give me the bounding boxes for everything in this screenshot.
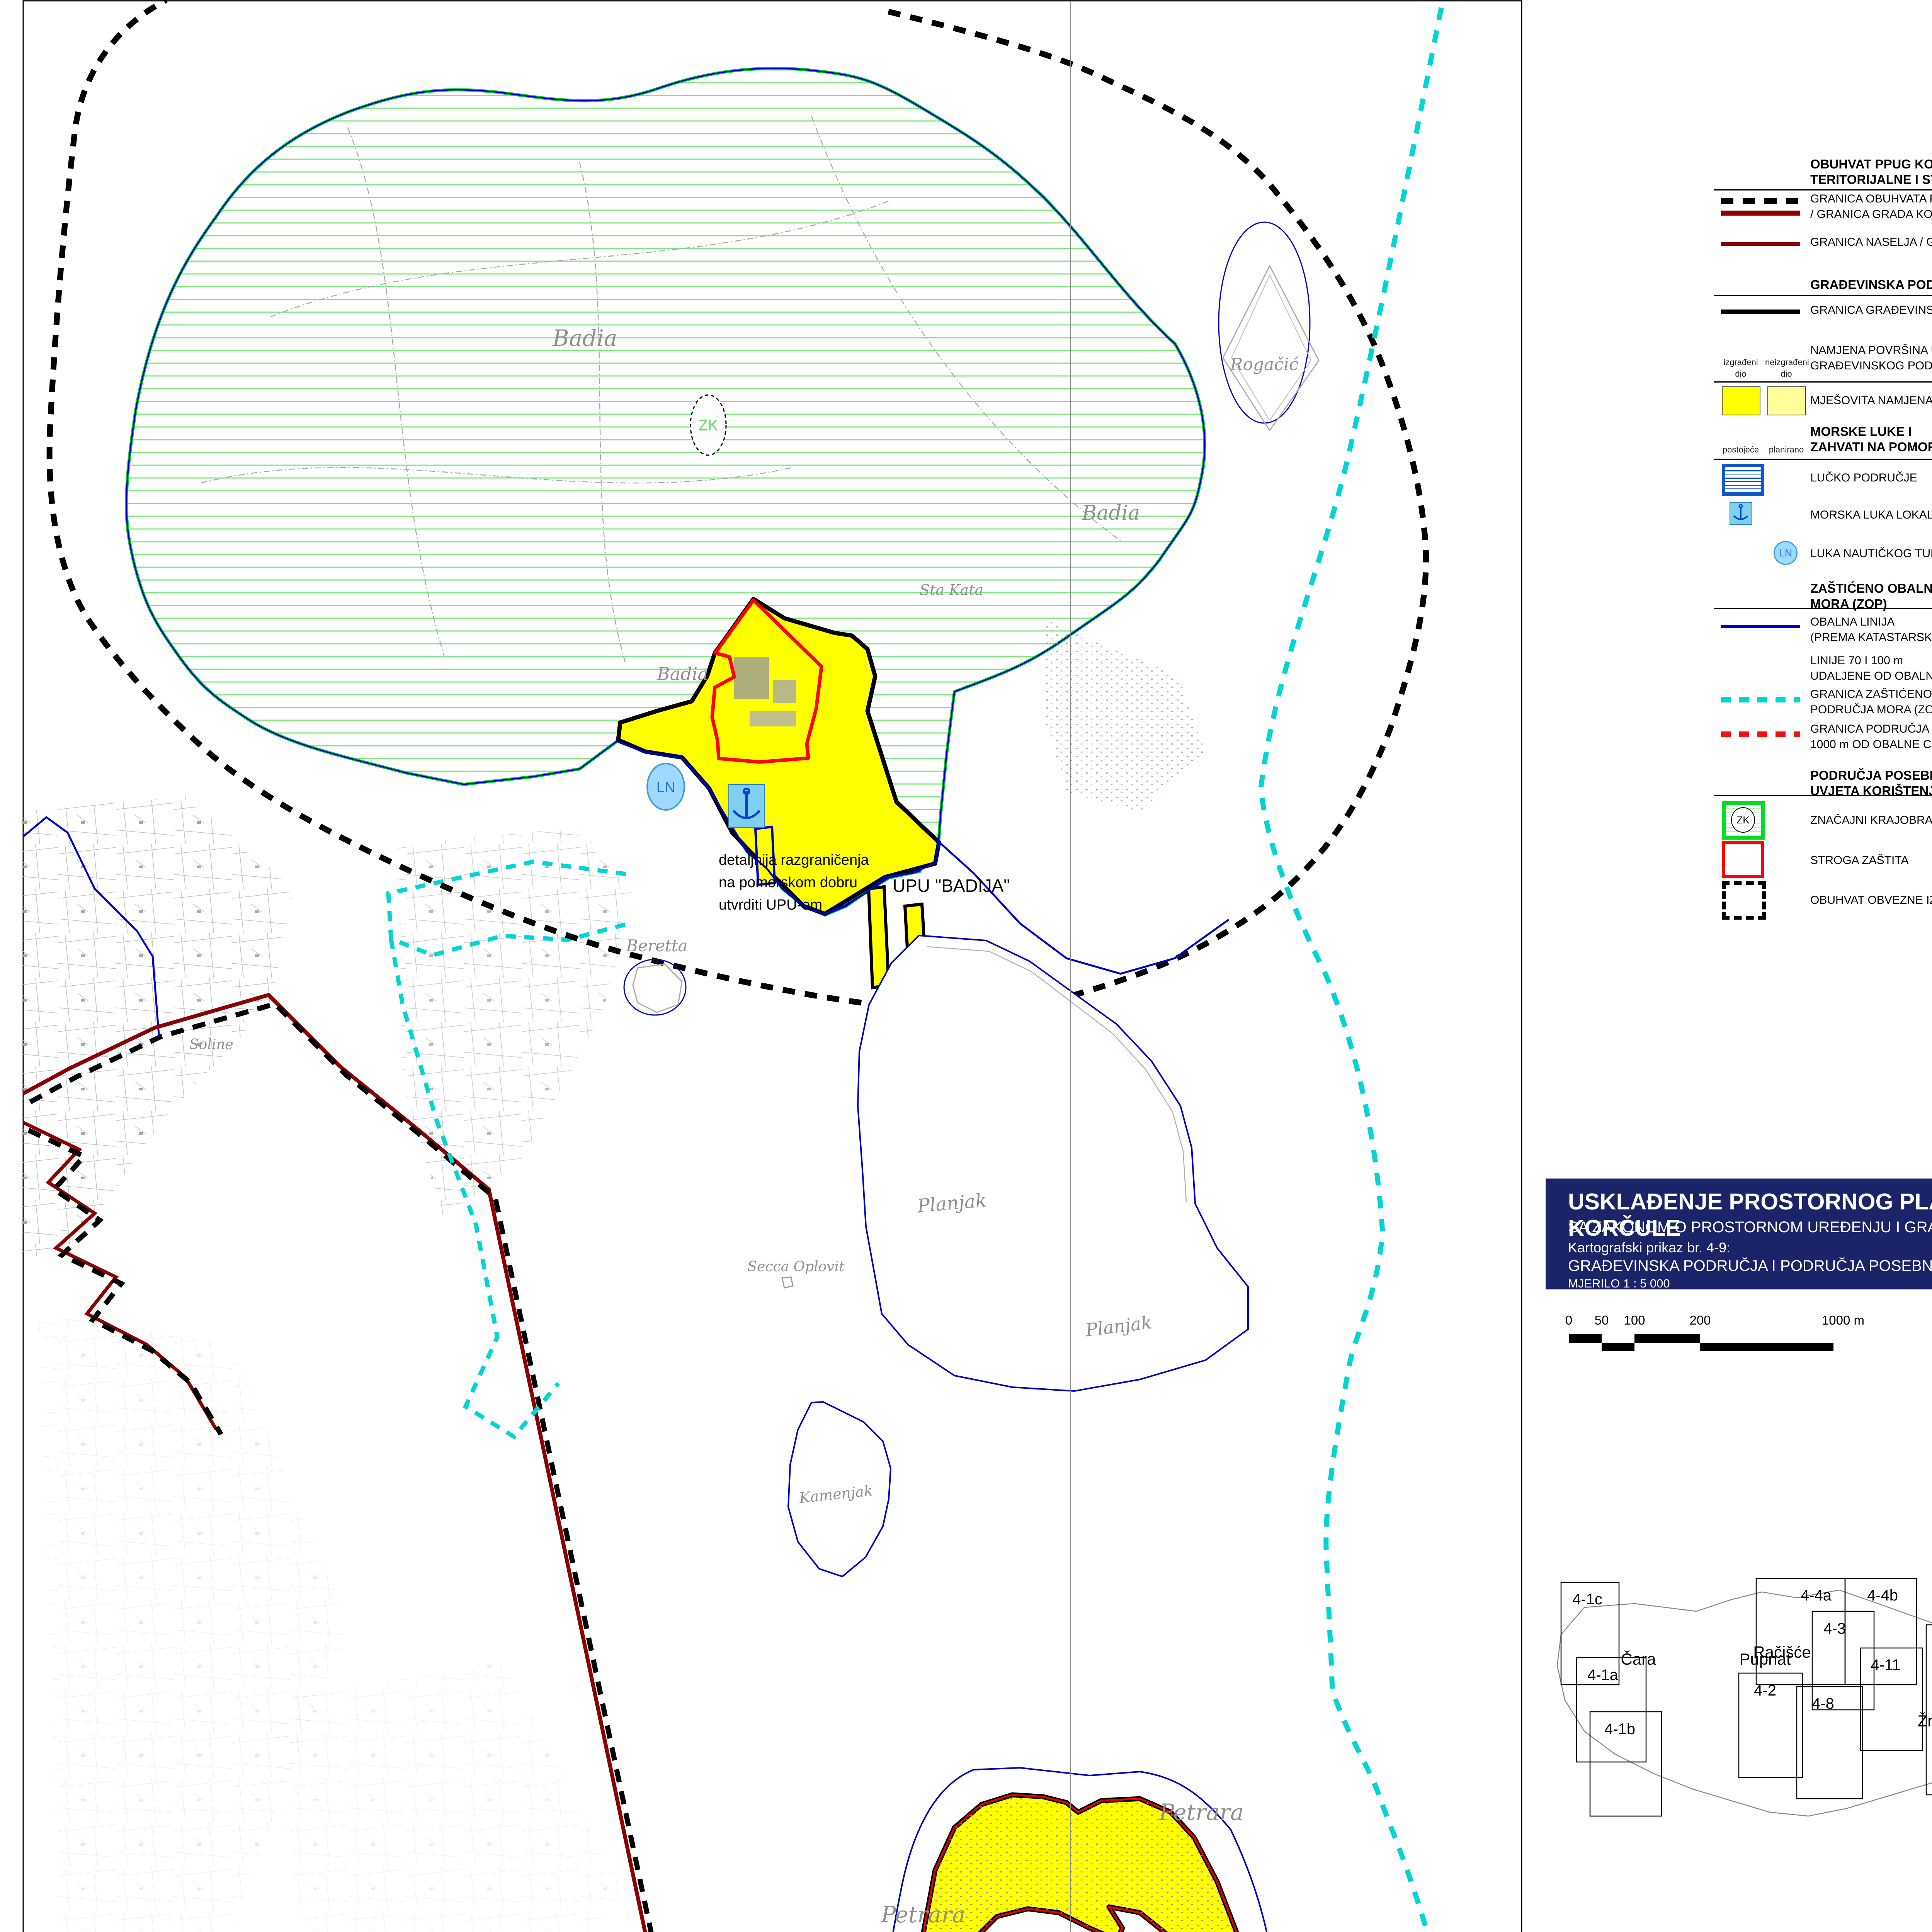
label-badia-1: Badia [552, 325, 617, 351]
svg-text:4-11: 4-11 [1871, 1656, 1900, 1673]
zk-icon: ZK [1731, 807, 1755, 833]
mjesovita-izgradeni-swatch [1722, 386, 1760, 415]
legend-col-postojece: postojeće [1719, 445, 1762, 455]
legend-item-label: GRANICA OBUHVATA PPUG KORČULE / / GRANIC… [1810, 191, 1932, 222]
legend-section-title: PODRUČJA POSEBNIH UVJETA KORIŠTENJA [1810, 768, 1932, 799]
legend-section-title: MORSKE LUKE I ZAHVATI NA POMORSKOM DOBRU [1810, 424, 1932, 455]
label-badia-3: Badia [656, 663, 708, 684]
legend-item-label: MORSKA LUKA LOKALNOG ZNAČAJA [1810, 507, 1932, 523]
gradevinsko-boundary-swatch [1721, 310, 1800, 314]
label-secca-oplovit: Secca Oplovit [747, 1259, 845, 1275]
scale-bar: 0 50 100 200 1000 m [1546, 1306, 1932, 1391]
anchor-icon [729, 784, 764, 828]
legend-item-label: GRANICA PODRUČJA UNUTAR ZOP-a, 1000 m OD… [1810, 721, 1932, 752]
label-petrara-2: Petrara [1159, 1799, 1244, 1825]
legend-divider [1714, 795, 1932, 796]
mjesovita-neizgradeni-swatch [1767, 386, 1806, 415]
map-number: Kartografski prikaz br. 4-9: [1568, 1240, 1730, 1256]
obuhvat-upu-swatch [1722, 881, 1766, 920]
ln-marina-symbol: LN [647, 764, 684, 810]
legend-col-dio: dio [1765, 369, 1808, 379]
title-block: USKLAĐENJE PROSTORNOG PLANA UREĐENJA GRA… [1546, 1179, 1932, 1289]
label-sta-kata: Sta Kata [920, 582, 983, 599]
legend-item-label: STROGA ZAŠTITA [1810, 853, 1908, 868]
legend-item-label: LUČKO PODRUČJE [1810, 470, 1917, 486]
svg-text:4-8: 4-8 [1812, 1695, 1834, 1712]
legend-divider [1714, 189, 1932, 190]
obalna-linija-swatch [1721, 625, 1800, 628]
legend-item-label: LUKA NAUTIČKOG TURIZMA [1810, 546, 1932, 561]
legend-item-label: OBUHVAT OBVEZNE IZRADE UPU-a [1810, 893, 1932, 908]
note-line-3: utvrditi UPU-om [719, 897, 822, 913]
zop-1000m-swatch [1721, 731, 1800, 737]
legend-item-label: OBALNA LINIJA (PREMA KATASTARSKOJ PODLOZ… [1810, 614, 1932, 645]
anchor-icon [1730, 502, 1752, 525]
legend-item-label: GRANICA NASELJA / GRANICA K.O. [1810, 235, 1932, 250]
grad-boundary-swatch [1721, 211, 1800, 216]
label-rogacic: Rogačić [1230, 355, 1299, 374]
znacajni-krajobraz-swatch: ZK [1722, 801, 1765, 840]
legend-item-label: LINIJE 70 I 100 m UDALJENE OD OBALNE LIN… [1810, 653, 1932, 684]
svg-text:4-4b: 4-4b [1867, 1587, 1898, 1604]
index-sheet-boxes [1561, 1578, 1932, 1826]
svg-text:4-1b: 4-1b [1604, 1721, 1635, 1738]
map-canvas: ZK LN [0, 0, 1538, 1932]
legend-item-label: MJEŠOVITA NAMJENA [1810, 393, 1932, 408]
plan-subtitle: SA ZAKONOM O PROSTORNOM UREĐENJU I GRADN… [1568, 1219, 1932, 1236]
svg-text:4-1a: 4-1a [1587, 1667, 1619, 1684]
legend-divider [1714, 381, 1932, 383]
stroga-zastita-swatch [1722, 841, 1764, 878]
label-badia-2: Badia [1082, 502, 1140, 525]
svg-text:4-3: 4-3 [1823, 1620, 1846, 1637]
legend-item-label: GRANICA GRAĐEVINSKOG PODRUČJA [1810, 303, 1932, 318]
legend-col-izgradeni: izgrađeni [1719, 357, 1762, 367]
zk-symbol: ZK [690, 395, 726, 455]
scale-tick: 50 [1595, 1313, 1609, 1327]
ln-symbol-label: LN [656, 779, 675, 796]
label-beretta: Beretta [626, 936, 687, 955]
scale-tick: 1000 m [1822, 1313, 1864, 1327]
legend-col-dio: dio [1719, 369, 1762, 379]
legend-section-title: OBUHVAT PPUG KORČULE; TERITORIJALNE I ST… [1810, 156, 1932, 187]
zop-boundary-swatch [1721, 697, 1800, 702]
legend-col-planirano: planirano [1765, 445, 1808, 455]
lucko-podrucje-swatch [1722, 464, 1764, 496]
legend-divider [1714, 295, 1932, 296]
legend-item-label: GRANICA ZAŠTIĆENOG OBALNOG PODRUČJA MORA… [1810, 687, 1932, 718]
zk-symbol-label: ZK [698, 417, 718, 434]
legend-divider [1714, 459, 1932, 460]
svg-text:4-1c: 4-1c [1572, 1591, 1602, 1608]
naselje-boundary-swatch [1721, 242, 1800, 246]
note-line-1: detaljnija razgraničenja [719, 852, 869, 868]
label-upu-badija: UPU "BADIJA" [893, 876, 1010, 896]
ln-icon: LN [1774, 541, 1798, 565]
plan-sheet: { "map": { "labels": { "badia1": "Badia"… [0, 0, 1932, 1932]
svg-text:4-4a: 4-4a [1801, 1587, 1832, 1604]
legend-section-title: GRAĐEVINSKA PODRUČJA [1810, 277, 1932, 293]
legend-section-title: ZAŠTIĆENO OBALNO PODRUČJE MORA (ZOP) [1810, 581, 1932, 612]
svg-text:4-2: 4-2 [1754, 1682, 1776, 1699]
label-soline: Soline [189, 1037, 233, 1053]
scale-tick: 200 [1689, 1313, 1711, 1327]
note-line-2: na pomorskom dobru [719, 874, 857, 891]
legend: OBUHVAT PPUG KORČULE; TERITORIJALNE I ST… [1712, 153, 1932, 925]
legend-item-label: ZNAČAJNI KRAJOBRAZ [1810, 813, 1932, 828]
legend-col-neizgradeni: neizgrađeni [1765, 357, 1808, 367]
scale-tick: 100 [1624, 1313, 1645, 1327]
index-map: 4-1c 4-4a 4-4b 4-5 4-10 4-12 4-3 4-9 4-1… [1546, 1561, 1932, 1843]
legend-divider [1714, 608, 1932, 609]
map-name: GRAĐEVINSKA PODRUČJA I PODRUČJA POSEBNIH… [1568, 1257, 1932, 1275]
svg-text:Žrnovo: Žrnovo [1918, 1712, 1932, 1730]
scale-bar-segments [1569, 1334, 1833, 1351]
legend-item-label: NAMJENA POVRŠINA UNUTAR GRAĐEVINSKOG POD… [1810, 343, 1932, 374]
scale-tick: 0 [1565, 1313, 1572, 1327]
label-petrara-1: Petrara [881, 1901, 966, 1928]
svg-text:Pupnat: Pupnat [1739, 1650, 1791, 1668]
map-scale: MJERILO 1 : 5 000 [1568, 1277, 1670, 1291]
svg-text:Čara: Čara [1621, 1650, 1656, 1668]
ppug-boundary-swatch [1721, 198, 1800, 204]
